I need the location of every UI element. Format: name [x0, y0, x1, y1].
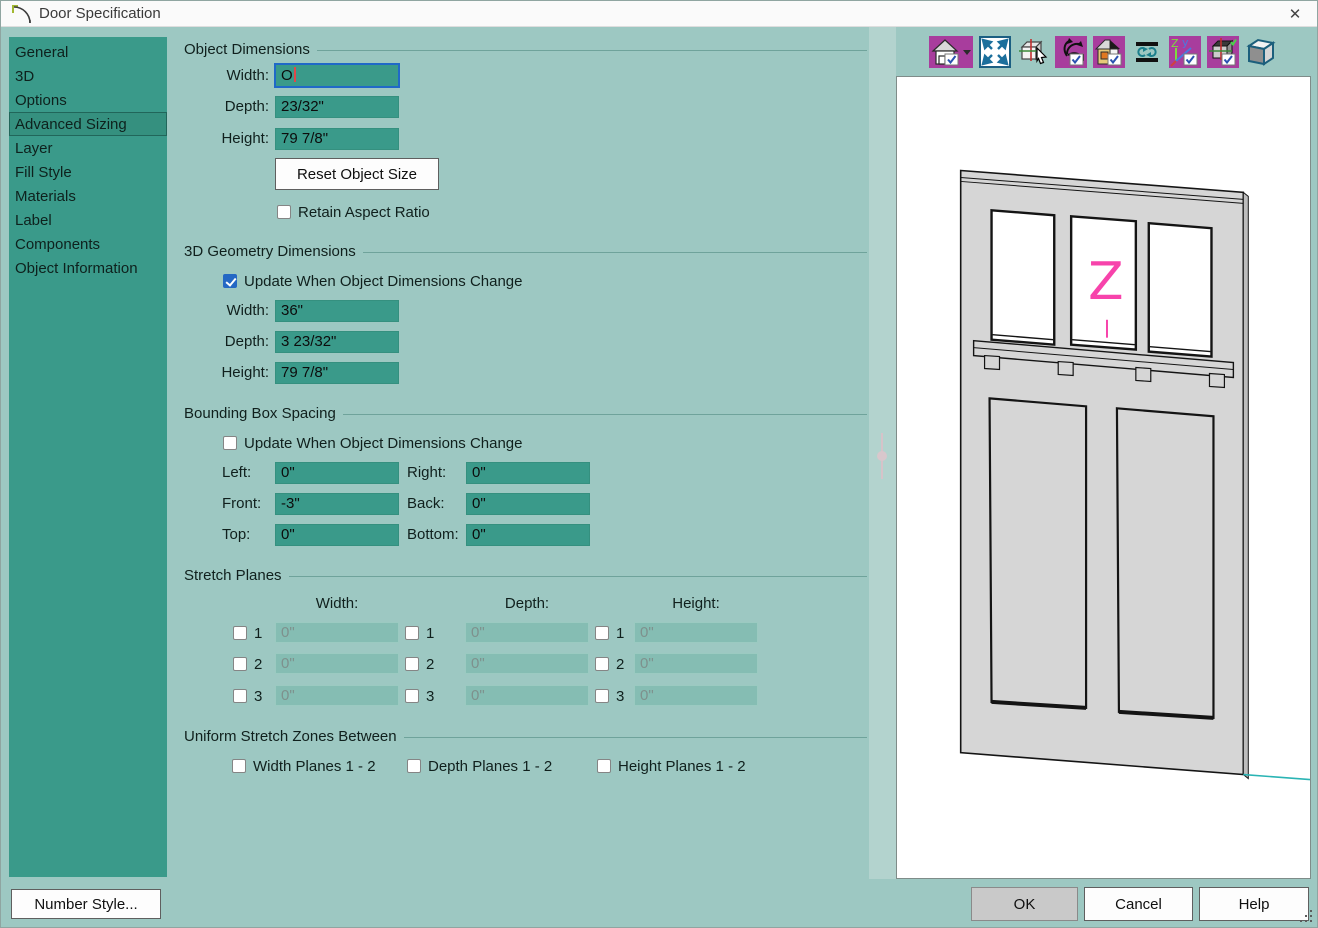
section-rule — [289, 576, 867, 577]
stretch-row-number: 3 — [426, 688, 434, 705]
text-caret — [294, 67, 296, 82]
door-3d-preview[interactable]: Z — [896, 76, 1311, 879]
width-planes-checkbox[interactable] — [232, 759, 246, 773]
stretch-height-1-checkbox[interactable] — [595, 626, 609, 640]
section-uniform-stretch: Uniform Stretch Zones Between — [184, 727, 867, 745]
stretch-depth-3-input: 0" — [465, 685, 589, 706]
door-preview-drawing: Z — [897, 77, 1310, 878]
help-button[interactable]: Help — [1199, 887, 1309, 921]
height-planes-checkbox[interactable] — [597, 759, 611, 773]
section-title: Stretch Planes — [184, 567, 282, 584]
section-3d-geometry: 3D Geometry Dimensions — [184, 242, 867, 260]
stretch-row-number: 2 — [426, 656, 434, 673]
width-planes-label: Width Planes 1 - 2 — [253, 758, 376, 775]
stretch-depth-1-row: 1 — [405, 625, 434, 641]
stretch-height-colhead: Height: — [634, 595, 758, 612]
width-planes-row: Width Planes 1 - 2 — [232, 758, 376, 774]
stretch-width-2-checkbox[interactable] — [233, 657, 247, 671]
door-window-1 — [992, 210, 1055, 344]
section-title: Bounding Box Spacing — [184, 405, 336, 422]
section-title: 3D Geometry Dimensions — [184, 243, 356, 260]
sidebar-item-3d[interactable]: 3D — [9, 64, 167, 88]
window-title: Door Specification — [39, 5, 161, 22]
width-value: O — [281, 67, 293, 84]
cancel-button[interactable]: Cancel — [1084, 887, 1193, 921]
geometry-height-label: Height: — [181, 362, 269, 384]
depth-planes-checkbox[interactable] — [407, 759, 421, 773]
stretch-row-number: 3 — [616, 688, 624, 705]
height-label: Height: — [181, 128, 269, 150]
stretch-width-1-checkbox[interactable] — [233, 626, 247, 640]
bottom-label: Bottom: — [407, 524, 459, 546]
door-window-3 — [1149, 223, 1212, 356]
geometry-update-row: Update When Object Dimensions Change — [223, 273, 522, 289]
stretch-width-2-row: 2 — [233, 656, 262, 672]
retain-aspect-ratio-row: Retain Aspect Ratio — [277, 204, 430, 220]
titlebar: Door Specification ✕ — [1, 1, 1317, 27]
sidebar-item-label[interactable]: Label — [9, 208, 167, 232]
front-label: Front: — [222, 493, 261, 515]
tilt-box-pointer-icon[interactable] — [1017, 36, 1049, 68]
sidebar-item-object-information[interactable]: Object Information — [9, 256, 167, 280]
stretch-width-1-row: 1 — [233, 625, 262, 641]
bounding-update-label: Update When Object Dimensions Change — [244, 435, 522, 452]
stretch-height-2-input: 0" — [634, 653, 758, 674]
width-label: Width: — [181, 65, 269, 87]
stretch-row-number: 1 — [254, 625, 262, 642]
stretch-width-1-input: 0" — [275, 622, 399, 643]
sidebar-item-components[interactable]: Components — [9, 232, 167, 256]
stretch-row-number: 2 — [254, 656, 262, 673]
stretch-depth-1-input: 0" — [465, 622, 589, 643]
stretch-row-number: 2 — [616, 656, 624, 673]
section-title: Object Dimensions — [184, 41, 310, 58]
section-stretch-planes: Stretch Planes — [184, 566, 867, 584]
sidebar-item-materials[interactable]: Materials — [9, 184, 167, 208]
geometry-depth-input[interactable]: 3 23/32" — [275, 331, 399, 353]
show-axes-icon[interactable]: Z y — [1169, 36, 1201, 68]
geometry-depth-label: Depth: — [181, 331, 269, 353]
bounding-update-row: Update When Object Dimensions Change — [223, 435, 522, 451]
panel-splitter-strip — [869, 27, 896, 879]
stretch-row-number: 1 — [426, 625, 434, 642]
perspective-view-icon[interactable] — [1093, 36, 1125, 68]
stretch-width-2-input: 0" — [275, 653, 399, 674]
door-panel-1 — [990, 398, 1087, 708]
floor-line — [1243, 775, 1310, 780]
sidebar-item-options[interactable]: Options — [9, 88, 167, 112]
cube-3d-icon[interactable] — [1245, 36, 1277, 68]
depth-planes-row: Depth Planes 1 - 2 — [407, 758, 552, 774]
section-rule — [363, 252, 867, 253]
stretch-height-3-input: 0" — [634, 685, 758, 706]
back-input[interactable]: 0" — [466, 493, 590, 515]
sidebar-item-layer[interactable]: Layer — [9, 136, 167, 160]
preview-slider-handle[interactable] — [877, 451, 887, 461]
section-rule — [404, 737, 867, 738]
section-rule — [343, 414, 867, 415]
standard-views-icon[interactable] — [929, 36, 973, 68]
section-title: Uniform Stretch Zones Between — [184, 728, 397, 745]
right-input[interactable]: 0" — [466, 462, 590, 484]
section-object-dimensions: Object Dimensions — [184, 40, 867, 58]
sidebar-item-fill-style[interactable]: Fill Style — [9, 160, 167, 184]
geometry-width-input[interactable]: 36" — [275, 300, 399, 322]
front-input[interactable]: -3" — [275, 493, 399, 515]
section-bounding-box: Bounding Box Spacing — [184, 404, 867, 422]
category-sidebar: General 3D Options Advanced Sizing Layer… — [9, 37, 167, 877]
top-label: Top: — [222, 524, 250, 546]
sidebar-item-general[interactable]: General — [9, 40, 167, 64]
geometry-height-input[interactable]: 79 7/8" — [275, 362, 399, 384]
top-input[interactable]: 0" — [275, 524, 399, 546]
stretch-width-colhead: Width: — [275, 595, 399, 612]
right-label: Right: — [407, 462, 446, 484]
stretch-depth-2-input: 0" — [465, 653, 589, 674]
retain-aspect-ratio-label: Retain Aspect Ratio — [298, 204, 430, 221]
stretch-height-1-row: 1 — [595, 625, 624, 641]
depth-planes-label: Depth Planes 1 - 2 — [428, 758, 552, 775]
door-label-text: Z — [1088, 252, 1123, 312]
height-planes-label: Height Planes 1 - 2 — [618, 758, 746, 775]
svg-text:y: y — [1182, 36, 1189, 49]
spin-view-icon[interactable] — [1131, 36, 1163, 68]
stretch-row-number: 3 — [254, 688, 262, 705]
left-input[interactable]: 0" — [275, 462, 399, 484]
depth-input[interactable]: 23/32" — [275, 96, 399, 118]
left-label: Left: — [222, 462, 251, 484]
section-rule — [317, 50, 867, 51]
door-specification-dialog: Door Specification ✕ General 3D Options … — [0, 0, 1318, 928]
stretch-depth-1-checkbox[interactable] — [405, 626, 419, 640]
stretch-depth-3-row: 3 — [405, 688, 434, 704]
height-input[interactable]: 79 7/8" — [275, 128, 399, 150]
stretch-height-3-row: 3 — [595, 688, 624, 704]
stretch-height-1-input: 0" — [634, 622, 758, 643]
stretch-depth-3-checkbox[interactable] — [405, 689, 419, 703]
geometry-width-label: Width: — [181, 300, 269, 322]
stretch-depth-2-checkbox[interactable] — [405, 657, 419, 671]
stretch-height-2-checkbox[interactable] — [595, 657, 609, 671]
reset-object-size-button[interactable]: Reset Object Size — [275, 158, 439, 190]
ok-button[interactable]: OK — [971, 887, 1078, 921]
stretch-width-3-checkbox[interactable] — [233, 689, 247, 703]
stretch-width-3-input: 0" — [275, 685, 399, 706]
number-style-button[interactable]: Number Style... — [11, 889, 161, 919]
bounding-update-checkbox[interactable] — [223, 436, 237, 450]
sidebar-item-advanced-sizing[interactable]: Advanced Sizing — [9, 112, 167, 136]
mouse-orbit-icon[interactable] — [1055, 36, 1087, 68]
close-icon[interactable]: ✕ — [1283, 3, 1307, 25]
stretch-width-3-row: 3 — [233, 688, 262, 704]
resize-grip[interactable] — [1297, 907, 1313, 923]
retain-aspect-ratio-checkbox[interactable] — [277, 205, 291, 219]
stretch-height-3-checkbox[interactable] — [595, 689, 609, 703]
door-swing-icon — [11, 4, 31, 24]
geometry-update-label: Update When Object Dimensions Change — [244, 273, 522, 290]
stretch-depth-2-row: 2 — [405, 656, 434, 672]
preview-toolbar: Z y — [929, 36, 1277, 68]
stretch-height-2-row: 2 — [595, 656, 624, 672]
door-panel-2 — [1117, 408, 1214, 718]
fill-window-icon[interactable] — [979, 36, 1011, 68]
width-input[interactable]: O — [274, 63, 400, 88]
stretch-row-number: 1 — [616, 625, 624, 642]
height-planes-row: Height Planes 1 - 2 — [597, 758, 746, 774]
bottom-input[interactable]: 0" — [466, 524, 590, 546]
geometry-update-checkbox[interactable] — [223, 274, 237, 288]
bounding-box-icon[interactable] — [1207, 36, 1239, 68]
stretch-depth-colhead: Depth: — [465, 595, 589, 612]
back-label: Back: — [407, 493, 445, 515]
depth-label: Depth: — [181, 96, 269, 118]
